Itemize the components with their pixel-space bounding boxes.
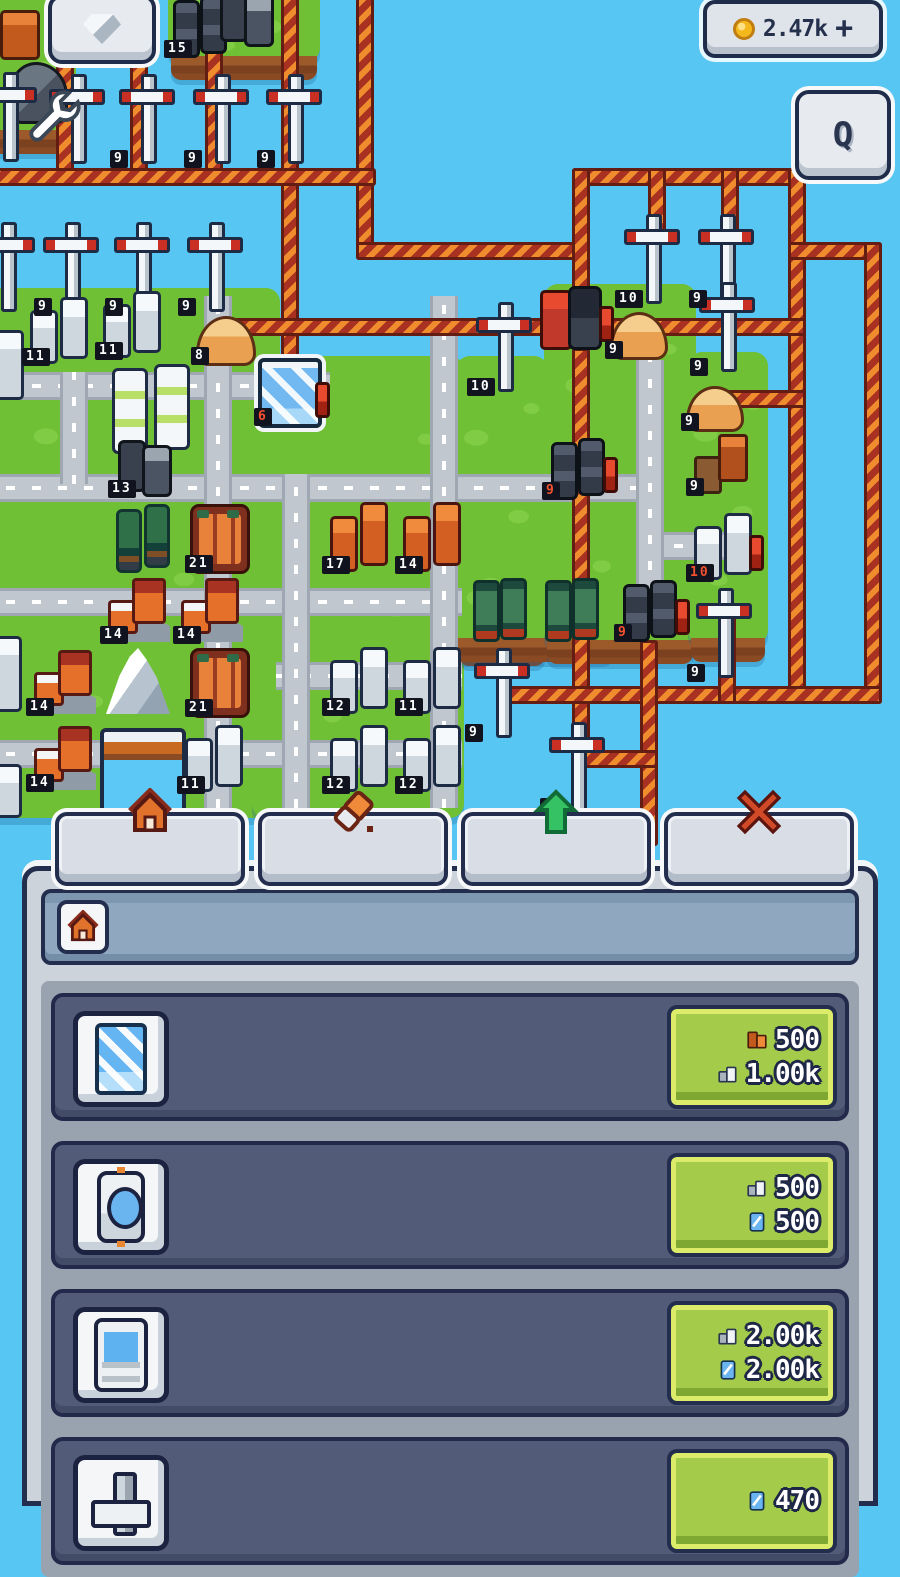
cost-amount: 2.00k bbox=[746, 1321, 819, 1351]
count-badge: 9 bbox=[686, 478, 704, 496]
map-tower-edge[interactable] bbox=[0, 764, 22, 818]
count-badge: 14 bbox=[395, 556, 423, 574]
count-badge: 9 bbox=[178, 298, 196, 316]
count-badge: 13 bbox=[108, 480, 136, 498]
list-item-watch: 500 500 bbox=[51, 1141, 849, 1269]
map-green-crates[interactable] bbox=[472, 576, 528, 640]
arrow-up-icon bbox=[532, 788, 580, 836]
map-brick-pile[interactable]: 21 bbox=[190, 648, 250, 718]
bricks-icon bbox=[746, 1029, 768, 1051]
currency-value: 2.47k bbox=[763, 16, 827, 42]
count-badge: 9 bbox=[681, 413, 699, 431]
map-pipe[interactable] bbox=[356, 0, 374, 260]
map-pipe[interactable] bbox=[0, 168, 376, 186]
map-wind-turbine[interactable]: 9 bbox=[186, 222, 244, 314]
count-badge: 11 bbox=[95, 342, 123, 360]
glass-icon bbox=[746, 1490, 768, 1512]
build-panel: 500 1.00k 500 500 bbox=[22, 866, 878, 1506]
map-houses[interactable]: 14 bbox=[34, 650, 96, 714]
house-icon bbox=[126, 788, 174, 836]
map-vans[interactable]: 9 bbox=[622, 580, 678, 640]
watch-icon bbox=[73, 1159, 169, 1255]
map-vans[interactable]: 9 bbox=[550, 438, 606, 498]
stone-icon bbox=[717, 1063, 739, 1085]
map-white-towers[interactable]: 10 bbox=[694, 514, 752, 580]
map-wind-turbine[interactable]: 10 bbox=[623, 214, 681, 306]
count-badge: 11 bbox=[22, 348, 50, 366]
count-badge: 9 bbox=[184, 150, 202, 168]
buy-button[interactable]: 2.00k 2.00k bbox=[667, 1301, 837, 1405]
cost-amount: 2.00k bbox=[746, 1355, 819, 1385]
count-badge: 14 bbox=[100, 626, 128, 644]
gem-button[interactable] bbox=[48, 0, 156, 64]
list-item-cross: 470 bbox=[51, 1437, 849, 1565]
cross-item-icon bbox=[73, 1455, 169, 1551]
map-green-crates[interactable] bbox=[544, 576, 600, 640]
count-badge: 9 bbox=[687, 664, 705, 682]
status-bar bbox=[599, 306, 614, 342]
eraser-icon bbox=[329, 788, 377, 836]
map-white-towers[interactable]: 12 bbox=[330, 726, 388, 792]
count-badge: 11 bbox=[177, 776, 205, 794]
map-pipe[interactable] bbox=[356, 242, 590, 260]
cost-amount: 500 bbox=[775, 1025, 819, 1055]
map-glass-building[interactable]: 6 bbox=[258, 358, 322, 428]
tab-build[interactable] bbox=[55, 812, 245, 886]
stone-icon bbox=[717, 1325, 739, 1347]
count-badge: 9 bbox=[542, 482, 560, 500]
count-badge: 8 bbox=[191, 347, 209, 365]
count-badge: 14 bbox=[173, 626, 201, 644]
panel-header bbox=[41, 889, 859, 965]
status-bar bbox=[603, 457, 618, 493]
map-tower-edge[interactable] bbox=[0, 636, 22, 712]
q-button-label: Q bbox=[833, 115, 853, 155]
map-cliff bbox=[547, 640, 693, 664]
list-item-window: 2.00k 2.00k bbox=[51, 1289, 849, 1417]
status-bar bbox=[675, 599, 690, 635]
count-badge: 11 bbox=[395, 698, 423, 716]
map-wind-turbine[interactable]: 10 bbox=[475, 302, 533, 394]
map-truck[interactable] bbox=[218, 0, 276, 46]
map-brick-pile[interactable]: 21 bbox=[190, 504, 250, 574]
map-furnace[interactable] bbox=[540, 286, 602, 350]
count-badge: 9 bbox=[105, 298, 123, 316]
map-road bbox=[282, 474, 310, 808]
map-wind-turbine[interactable]: 9 bbox=[118, 74, 176, 166]
map-pipe[interactable] bbox=[572, 168, 806, 186]
map-white-towers[interactable]: 12 bbox=[330, 648, 388, 714]
map-white-towers[interactable]: 11 bbox=[185, 726, 243, 792]
game-screen: { "hud": { "gem_button": {"icon": "gem-i… bbox=[0, 0, 900, 1498]
tab-close[interactable] bbox=[664, 812, 854, 886]
gem-icon bbox=[83, 14, 121, 44]
map-white-towers[interactable]: 12 bbox=[403, 726, 461, 792]
add-currency-button[interactable]: + bbox=[835, 19, 853, 39]
stone-icon bbox=[746, 1177, 768, 1199]
map-trees[interactable] bbox=[116, 504, 170, 570]
count-badge: 10 bbox=[615, 290, 643, 308]
map-pipe[interactable] bbox=[281, 0, 299, 402]
glass-pane-icon bbox=[73, 1011, 169, 1107]
map-road bbox=[60, 372, 88, 484]
toolbar-tabs bbox=[0, 812, 900, 886]
count-badge: 9 bbox=[465, 724, 483, 742]
map-wind-turbine[interactable]: 9 bbox=[265, 74, 323, 166]
map-white-towers[interactable]: 11 bbox=[403, 648, 461, 714]
cost-amount: 500 bbox=[775, 1207, 819, 1237]
q-button[interactable]: Q bbox=[795, 90, 891, 180]
glass-icon bbox=[717, 1359, 739, 1381]
x-icon bbox=[735, 788, 783, 836]
coin-icon bbox=[733, 18, 755, 40]
map-greenhouse[interactable] bbox=[112, 364, 190, 452]
count-badge: 14 bbox=[26, 774, 54, 792]
item-list: 500 1.00k 500 500 bbox=[41, 981, 859, 1577]
window-icon bbox=[73, 1307, 169, 1403]
count-badge: 12 bbox=[395, 776, 423, 794]
tab-upgrade[interactable] bbox=[461, 812, 651, 886]
map-pipe[interactable] bbox=[500, 686, 882, 704]
count-badge: 10 bbox=[467, 378, 495, 396]
map-wind-turbine[interactable]: 9 bbox=[473, 648, 531, 740]
status-bar bbox=[749, 535, 764, 571]
map-houses[interactable]: 14 bbox=[181, 578, 243, 642]
count-badge: 15 bbox=[164, 40, 192, 58]
map-orange-crates[interactable]: 9 bbox=[694, 434, 750, 494]
cost-amount: 500 bbox=[775, 1173, 819, 1203]
map-truck[interactable]: 13 bbox=[116, 440, 174, 496]
cost-amount: 470 bbox=[775, 1486, 819, 1516]
currency-display[interactable]: 2.47k + bbox=[703, 0, 883, 58]
glass-icon bbox=[746, 1211, 768, 1233]
status-bar bbox=[315, 382, 330, 418]
buy-button[interactable]: 500 1.00k bbox=[667, 1005, 837, 1109]
buy-button[interactable]: 470 bbox=[667, 1449, 837, 1553]
map-wind-turbine[interactable]: 9 bbox=[192, 74, 250, 166]
count-badge: 10 bbox=[686, 564, 714, 582]
count-badge: 17 bbox=[322, 556, 350, 574]
wrench-icon bbox=[22, 86, 88, 152]
count-badge: 9 bbox=[689, 290, 707, 308]
map-pipe[interactable] bbox=[864, 242, 882, 704]
count-badge: 6 bbox=[254, 408, 272, 426]
count-badge: 9 bbox=[690, 358, 708, 376]
cost-amount: 1.00k bbox=[746, 1059, 819, 1089]
map-tower-edge[interactable] bbox=[0, 330, 24, 400]
tab-erase[interactable] bbox=[258, 812, 448, 886]
buy-button[interactable]: 500 500 bbox=[667, 1153, 837, 1257]
map-wind-turbine[interactable]: 9 bbox=[695, 588, 753, 680]
map-crate[interactable] bbox=[0, 10, 40, 60]
count-badge: 21 bbox=[185, 555, 213, 573]
house-icon bbox=[57, 900, 109, 954]
count-badge: 14 bbox=[26, 698, 54, 716]
count-badge: 9 bbox=[110, 150, 128, 168]
count-badge: 9 bbox=[257, 150, 275, 168]
list-item-glass-pane: 500 1.00k bbox=[51, 993, 849, 1121]
count-badge: 12 bbox=[322, 698, 350, 716]
map-houses[interactable]: 14 bbox=[34, 726, 96, 790]
count-badge: 9 bbox=[34, 298, 52, 316]
map-orange-towers[interactable]: 17 bbox=[330, 504, 388, 572]
count-badge: 21 bbox=[185, 699, 213, 717]
count-badge: 9 bbox=[605, 341, 623, 359]
count-badge: 9 bbox=[614, 624, 632, 642]
map-orange-towers[interactable]: 14 bbox=[403, 504, 461, 572]
map-houses[interactable]: 14 bbox=[108, 578, 170, 642]
